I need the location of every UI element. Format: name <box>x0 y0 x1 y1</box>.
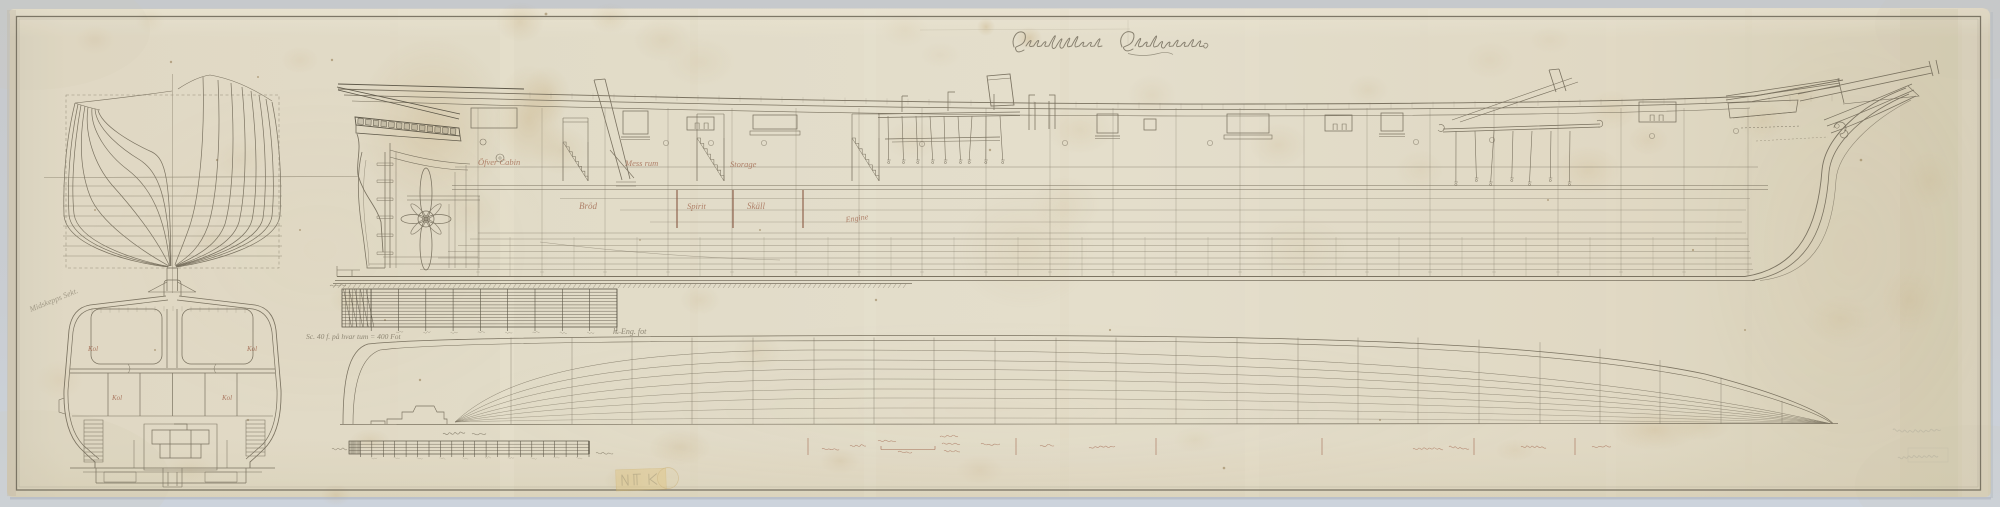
svg-text:Skäll: Skäll <box>747 201 765 211</box>
svg-text:Kol: Kol <box>246 345 257 353</box>
svg-text:Storage: Storage <box>730 159 757 169</box>
svg-text:Spirit: Spirit <box>687 201 707 211</box>
svg-text:Bröd: Bröd <box>579 201 598 211</box>
svg-text:Sc. 40 f. på hvar tum = 400 Fo: Sc. 40 f. på hvar tum = 400 Fot <box>306 332 402 341</box>
svg-text:Mess rum: Mess rum <box>624 158 658 168</box>
svg-text:Kol: Kol <box>221 394 232 402</box>
svg-text:Öfver Cabin: Öfver Cabin <box>478 157 520 167</box>
svg-text:Kol: Kol <box>87 345 98 353</box>
svg-text:h. Eng. fot: h. Eng. fot <box>613 327 647 336</box>
svg-text:Kol: Kol <box>111 394 122 402</box>
